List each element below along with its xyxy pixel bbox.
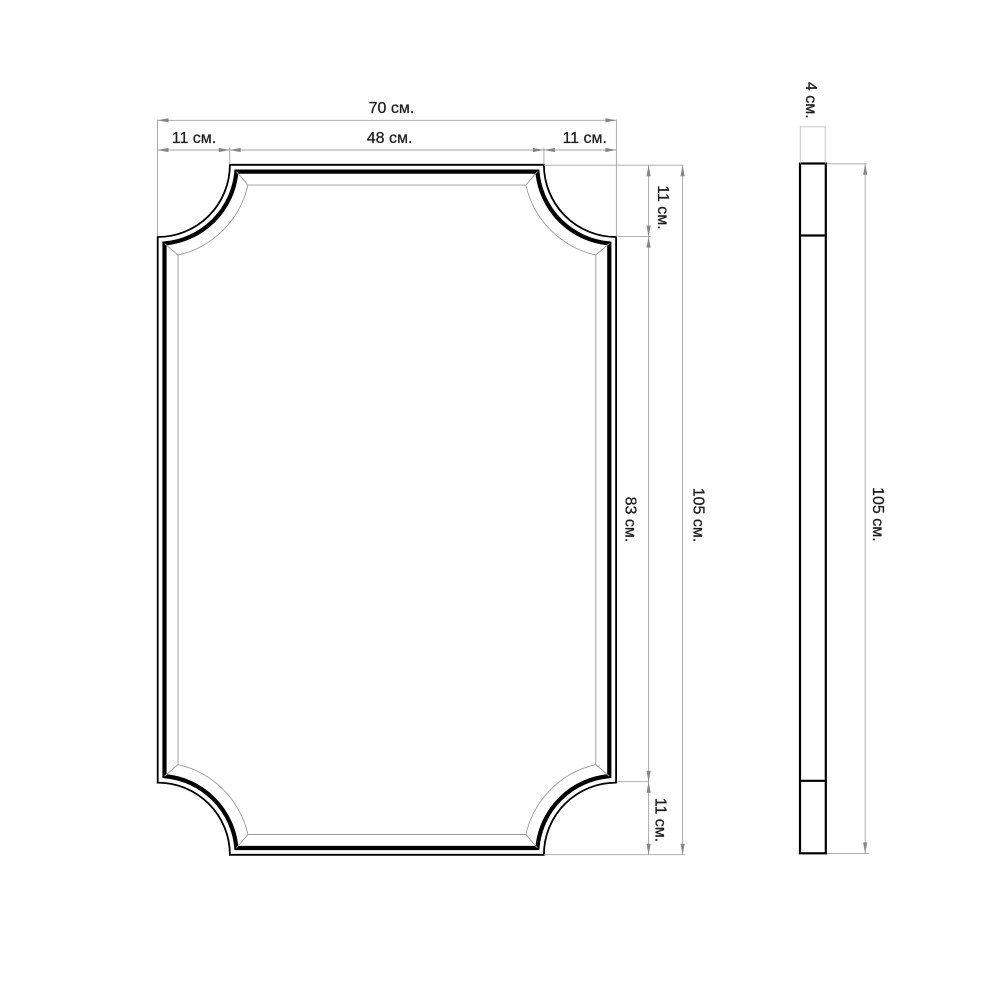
svg-text:48 см.: 48 см. — [367, 130, 413, 147]
svg-text:11 см.: 11 см. — [172, 130, 217, 147]
svg-text:83 см.: 83 см. — [621, 497, 638, 543]
svg-text:11 см.: 11 см. — [651, 798, 668, 843]
svg-text:11 см.: 11 см. — [562, 130, 607, 147]
svg-text:70 см.: 70 см. — [369, 100, 415, 117]
svg-text:105 см.: 105 см. — [869, 487, 886, 542]
svg-text:4 см.: 4 см. — [802, 82, 819, 119]
svg-text:105 см.: 105 см. — [689, 488, 706, 543]
svg-text:11 см.: 11 см. — [654, 185, 671, 230]
